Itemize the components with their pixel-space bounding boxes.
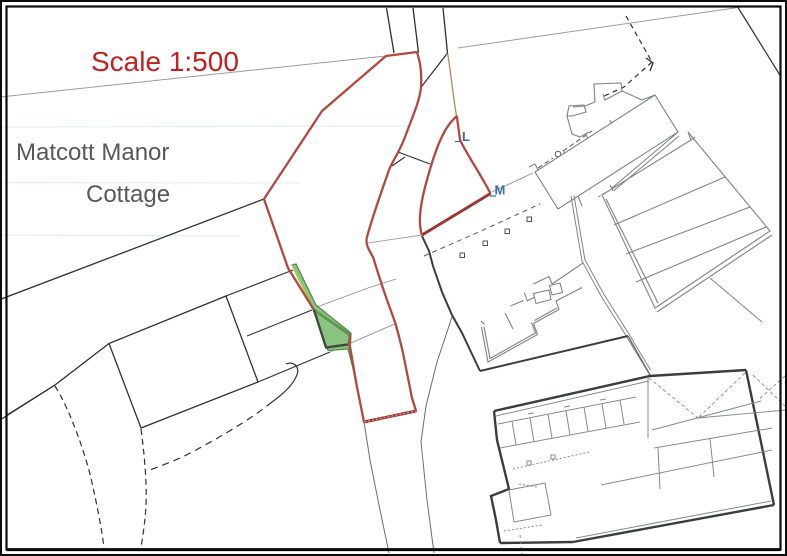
svg-text:L: L — [462, 129, 470, 144]
svg-text:Scale 1:500: Scale 1:500 — [91, 46, 239, 77]
svg-text:Matcott Manor: Matcott Manor — [16, 139, 169, 166]
svg-text:Cottage: Cottage — [86, 181, 170, 208]
svg-text:M: M — [495, 183, 506, 198]
